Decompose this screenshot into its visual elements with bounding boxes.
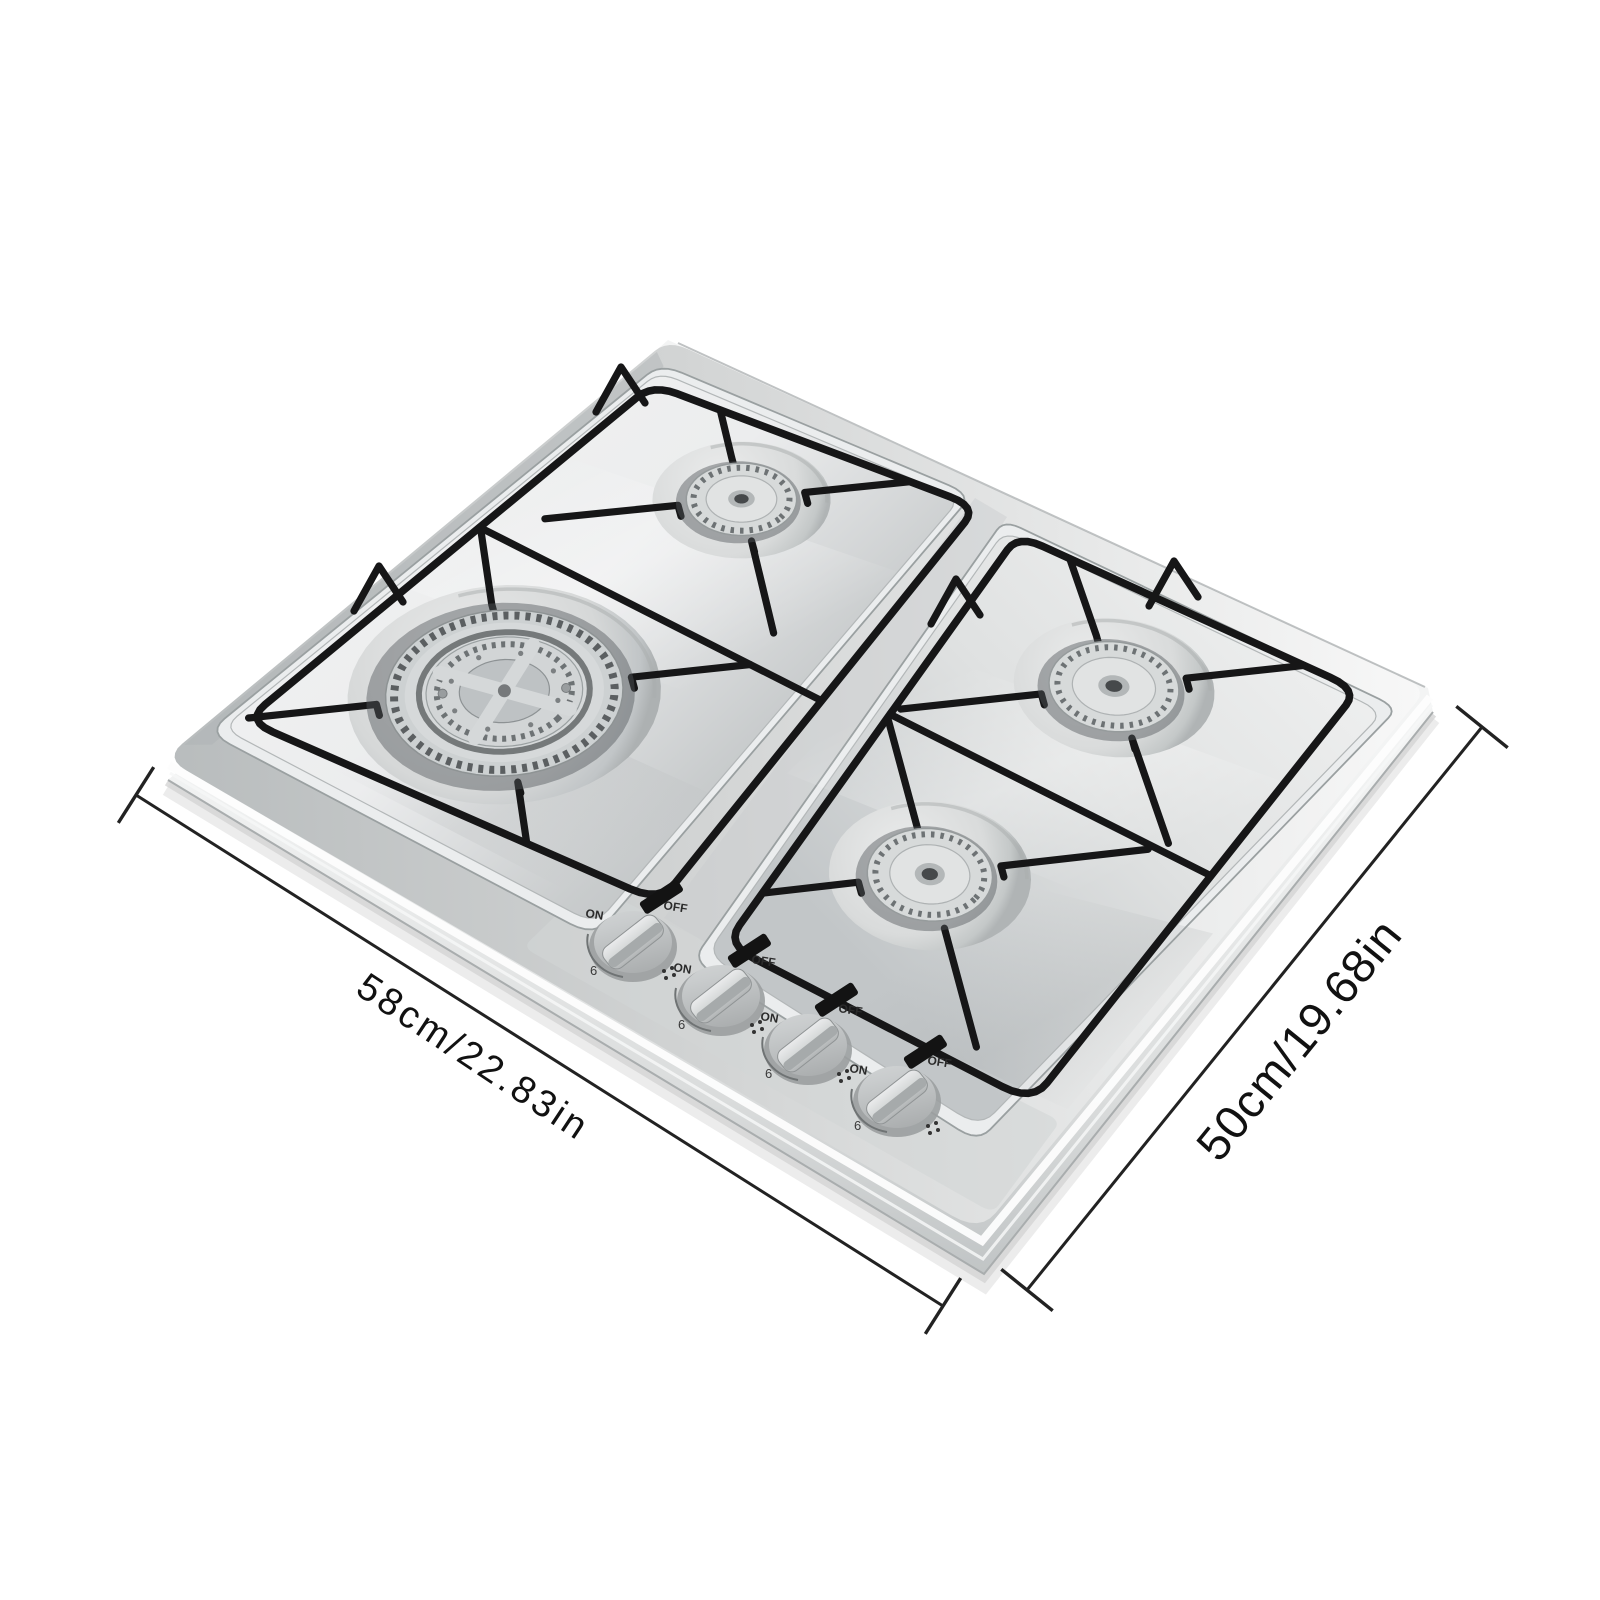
svg-text:ON: ON bbox=[760, 1009, 780, 1026]
svg-text:6: 6 bbox=[854, 1118, 861, 1133]
svg-text:ON: ON bbox=[673, 960, 693, 977]
svg-text:6: 6 bbox=[590, 963, 597, 978]
svg-text:6: 6 bbox=[765, 1066, 772, 1081]
svg-text:ON: ON bbox=[585, 906, 605, 923]
svg-text:ON: ON bbox=[849, 1061, 869, 1078]
svg-text:6: 6 bbox=[678, 1017, 685, 1032]
